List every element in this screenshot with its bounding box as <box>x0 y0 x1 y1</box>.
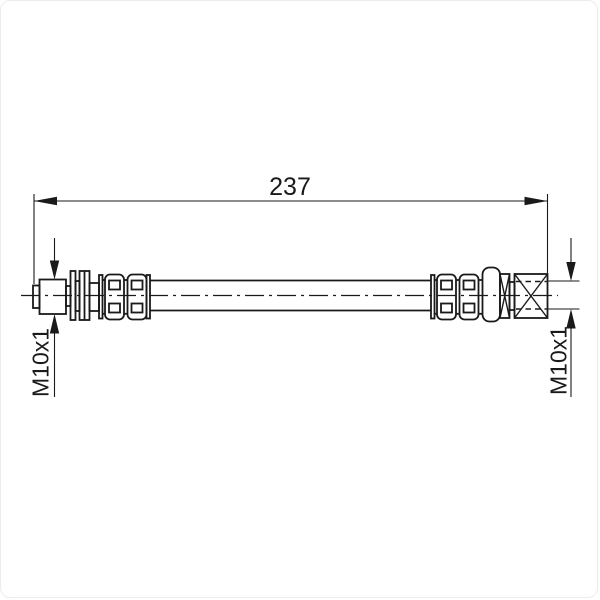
left-sleeve-end-cap <box>99 275 103 319</box>
left-sleeve-crimp-band-2-top <box>132 281 143 290</box>
right-fitting <box>483 268 548 322</box>
left-sleeve-crimp-band-1-top <box>109 281 120 290</box>
left-sleeve-crimp-band-1-bottom <box>109 304 120 313</box>
drawing-canvas: 237 <box>0 0 598 598</box>
overall-length-dimension: 237 <box>34 173 548 284</box>
brake-hose-technical-drawing: 237 <box>1 1 598 598</box>
right-sleeve-crimp-band-2-bottom <box>464 304 475 313</box>
left-thread-label: M10x1 <box>28 328 54 397</box>
dimension-arrow-right-icon <box>525 197 548 206</box>
right-sleeve-crimp-band-1-top <box>441 281 452 290</box>
left-sleeve-hose-cap <box>147 275 151 319</box>
dimension-arrow-left-icon <box>34 197 57 206</box>
left-sleeve-crimp-band-2-bottom <box>132 304 143 313</box>
right-thread-annotation: M10x1 <box>546 238 580 397</box>
right-fitting-collar <box>483 268 501 322</box>
right-sleeve-crimp-band-1-bottom <box>441 304 452 313</box>
right-thread-label: M10x1 <box>546 326 572 395</box>
right-sleeve-hose-cap <box>431 275 435 319</box>
right-thread-arrow-up-icon <box>566 309 575 329</box>
left-fitting-shank <box>90 283 100 311</box>
left-fitting <box>33 271 99 320</box>
left-crimp-sleeve <box>99 275 150 320</box>
left-thread-tip <box>33 286 40 309</box>
right-crimp-sleeve <box>431 275 483 320</box>
right-sleeve-crimp-band-2-top <box>464 281 475 290</box>
right-thread-arrow-down-icon <box>566 262 575 281</box>
left-thread-arrow-down-icon <box>50 261 59 280</box>
overall-length-value: 237 <box>269 173 311 201</box>
left-thread-body <box>40 280 67 315</box>
left-thread-annotation: M10x1 <box>28 238 60 397</box>
